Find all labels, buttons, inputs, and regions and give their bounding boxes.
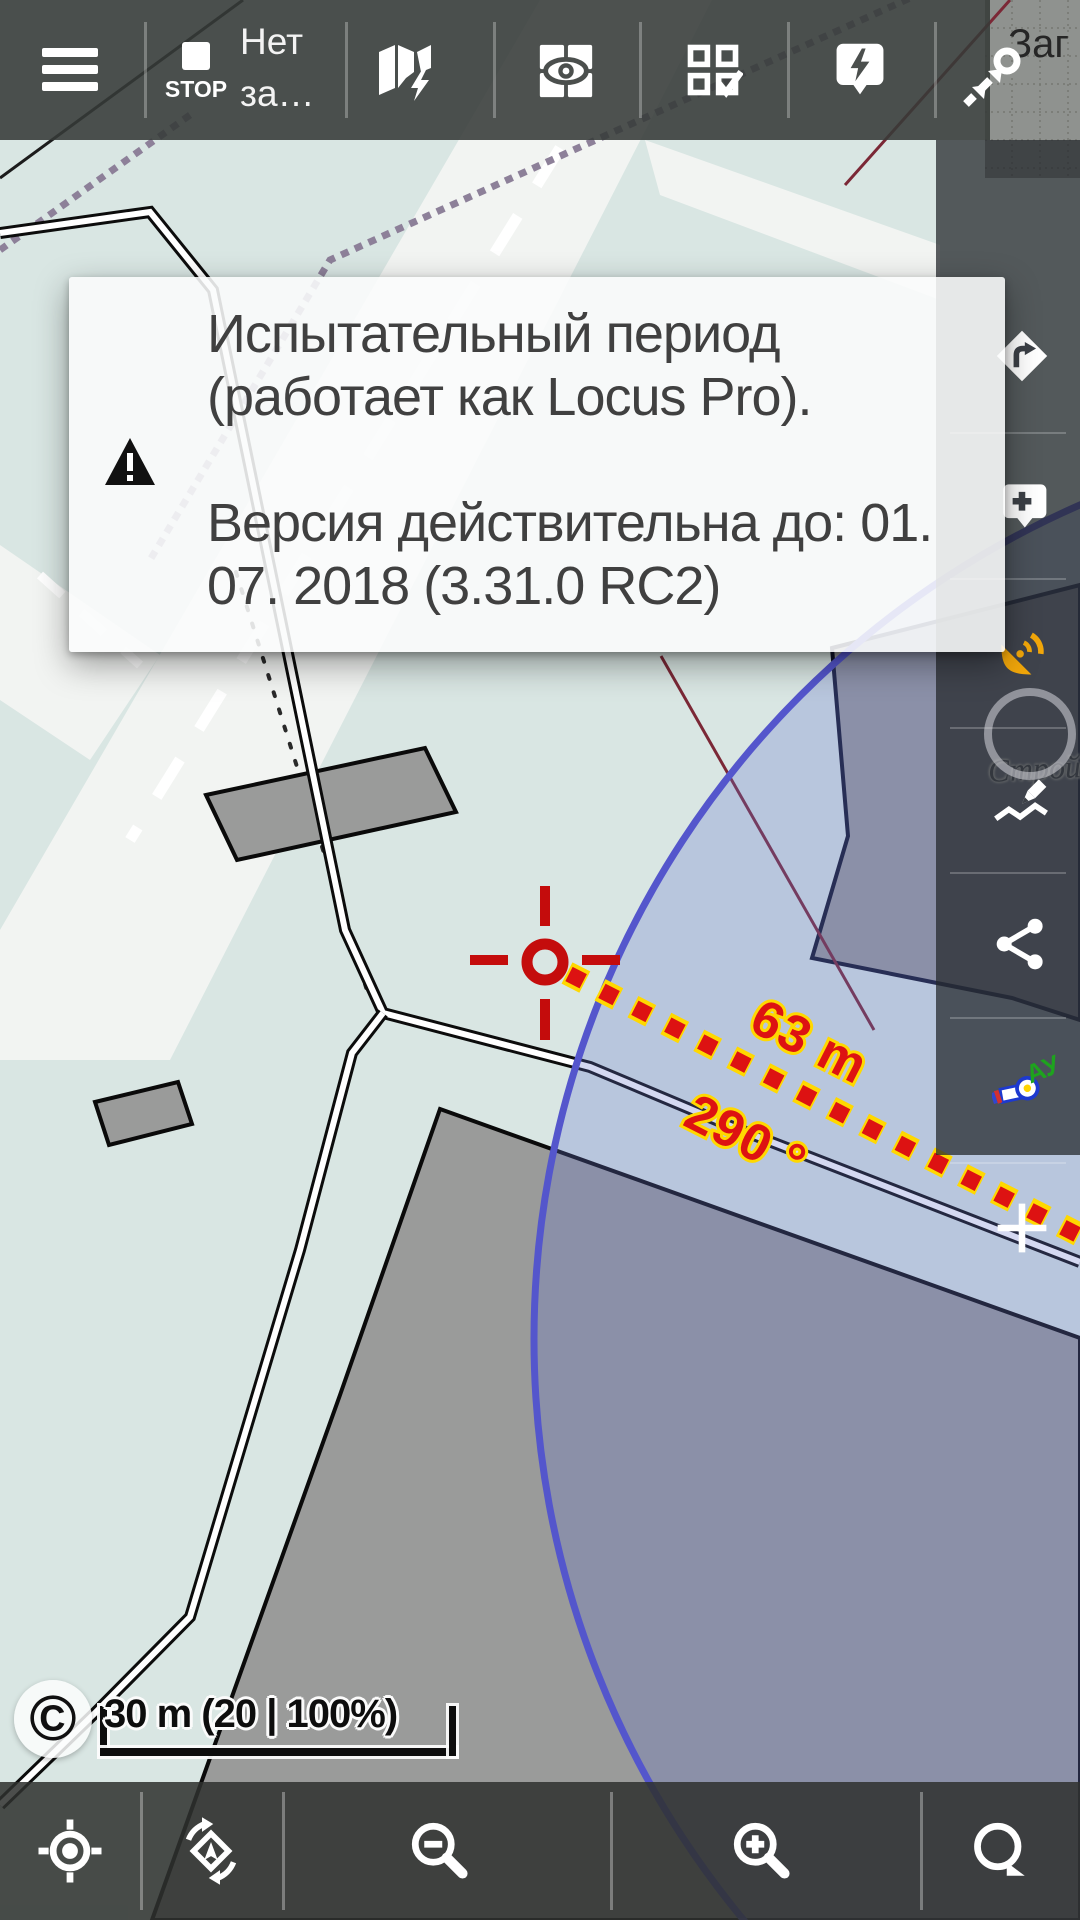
gps-target-icon [34, 1815, 106, 1887]
stop-icon [182, 42, 210, 70]
locus-map-screen: 63 m 290 ° Стройм © 30 m (20 | 100%) STO… [0, 0, 1080, 1920]
quick-settings-button[interactable] [830, 38, 890, 102]
map-content-button[interactable] [683, 40, 743, 100]
copyright-icon[interactable]: © [14, 1680, 92, 1758]
map-scale-label: 30 m (20 | 100%) [104, 1692, 397, 1737]
menu-button[interactable] [30, 40, 110, 100]
trial-period-message: Испытательный период (работает как Locus… [207, 303, 997, 618]
zoom-out-button[interactable] [404, 1815, 476, 1887]
track-status-label: Нет за… [240, 16, 350, 120]
zoom-in-button[interactable] [726, 1815, 798, 1887]
zoom-out-icon [404, 1815, 476, 1887]
warning-icon [103, 435, 157, 491]
scale-bar-right-tick [449, 1706, 456, 1756]
trial-period-toast[interactable]: Испытательный период (работает как Locus… [69, 277, 1005, 652]
map-marker-ring [984, 688, 1076, 780]
zoom-in-icon [726, 1815, 798, 1887]
add-function-button[interactable] [992, 1198, 1052, 1258]
plus-icon [992, 1198, 1052, 1258]
av-announce-button[interactable]: АУ [992, 1060, 1052, 1120]
stop-label: STOP [150, 76, 242, 103]
bottom-toolbar [0, 1782, 1080, 1920]
move-to-point-button[interactable] [962, 44, 1026, 108]
arrows-to-ring-icon [962, 44, 1026, 108]
share-button[interactable] [992, 914, 1052, 974]
scale-bar-line [100, 1748, 456, 1756]
share-icon [992, 914, 1052, 974]
top-toolbar: STOP Нет за… [0, 0, 990, 140]
map-eye-icon [535, 40, 597, 102]
zoom-lock-icon [964, 1815, 1036, 1887]
hamburger-icon [30, 40, 110, 100]
lightning-shield-icon [830, 38, 890, 102]
rotate-map-button[interactable] [175, 1815, 247, 1887]
map-manager-button[interactable] [373, 38, 437, 102]
grid-check-icon [683, 40, 743, 100]
map-lightning-icon [373, 38, 437, 102]
center-gps-button[interactable] [34, 1815, 106, 1887]
zoom-lock-button[interactable] [964, 1815, 1036, 1887]
rotate-map-icon [175, 1815, 247, 1887]
map-display-button[interactable] [535, 40, 597, 102]
